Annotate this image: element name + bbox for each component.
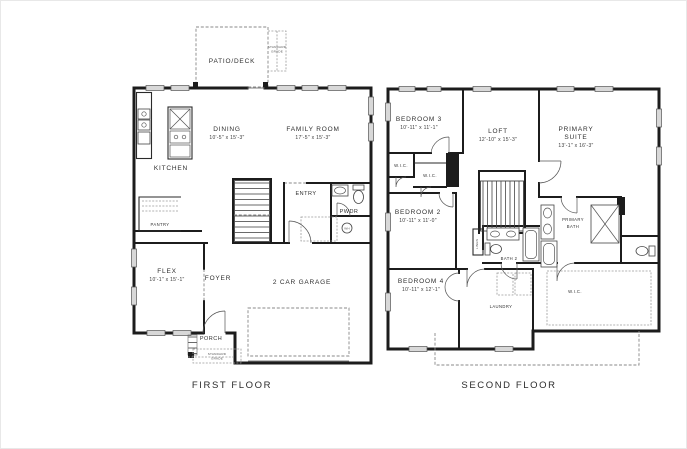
family-room-dims: 17'-5" x 15'-3" bbox=[295, 135, 330, 141]
bedroom4-dims: 10'-11" x 12'-1" bbox=[402, 287, 440, 293]
patio-post bbox=[263, 82, 268, 87]
pantry-shelves bbox=[142, 201, 178, 211]
toilet-tank-icon bbox=[353, 185, 364, 190]
laundry-fixtures bbox=[497, 273, 531, 295]
dining-label: DINING bbox=[213, 126, 241, 133]
patio-note-line2: GRADE bbox=[271, 50, 283, 54]
first-floor-plan: PATIO/DECK STANDARD GRADE bbox=[132, 27, 374, 391]
primary-suite-label-line1: PRIMARY bbox=[558, 126, 593, 133]
dryer-icon bbox=[515, 273, 531, 295]
porch-note-line1: STANDARD bbox=[208, 352, 227, 356]
patio-label: PATIO/DECK bbox=[209, 58, 255, 65]
bedroom2-label: BEDROOM 2 bbox=[395, 209, 441, 216]
garage-label: 2 CAR GARAGE bbox=[273, 279, 331, 286]
toilet-icon bbox=[636, 247, 648, 256]
entry-label: ENTRY bbox=[295, 191, 316, 197]
fridge-icon bbox=[138, 132, 150, 144]
primary-bath-label-line2: BATH bbox=[567, 224, 579, 229]
front-door bbox=[203, 311, 225, 333]
bedroom3-dims: 10'-11" x 11'-1" bbox=[400, 125, 438, 131]
bath2-label: BATH 2 bbox=[501, 256, 518, 261]
foyer-label: FOYER bbox=[205, 275, 231, 282]
primary-bath-label-line1: PRIMARY bbox=[562, 217, 584, 222]
primary-wic-door bbox=[557, 263, 575, 281]
water-heater-closet: WH bbox=[342, 223, 352, 233]
pantry: PANTRY bbox=[139, 197, 181, 231]
dining-dims: 10'-5" x 15'-3" bbox=[209, 135, 244, 141]
bedroom3-label: BEDROOM 3 bbox=[396, 116, 442, 123]
second-floor-title: SECOND FLOOR bbox=[461, 380, 556, 391]
linen-label: LINEN bbox=[475, 239, 479, 249]
toilet-tank-icon bbox=[485, 243, 490, 255]
patio-deck: PATIO/DECK STANDARD GRADE bbox=[193, 27, 287, 87]
laundry-door bbox=[467, 269, 485, 287]
bedroom2-dims: 10'-11" x 11'-0" bbox=[399, 218, 437, 224]
garage-door-outline bbox=[248, 308, 349, 356]
kitchen-label: KITCHEN bbox=[154, 165, 188, 172]
powder-label: PWDR bbox=[340, 209, 359, 215]
loft-dims: 12'-10" x 15'-3" bbox=[479, 137, 517, 143]
oven-icon bbox=[138, 109, 150, 119]
wic1-door bbox=[396, 177, 406, 187]
pantry-label: PANTRY bbox=[151, 222, 170, 227]
garage-details bbox=[248, 308, 349, 361]
wall-chase bbox=[446, 153, 459, 187]
toilet-icon bbox=[491, 245, 502, 254]
primary-suite-label-line2: SUITE bbox=[564, 134, 587, 141]
bedroom3-door bbox=[431, 137, 449, 153]
first-floor-title: FIRST FLOOR bbox=[192, 380, 272, 391]
primary-suite-dims: 13'-1" x 16'-3" bbox=[558, 143, 593, 149]
primary-wic-label: W.I.C. bbox=[568, 289, 582, 294]
garage-entry-door bbox=[289, 221, 311, 243]
porch-label: PORCH bbox=[200, 336, 222, 342]
patio-outline bbox=[196, 27, 268, 87]
wic1-label: W.I.C. bbox=[394, 163, 408, 168]
vanity-icon bbox=[487, 228, 519, 240]
porch-note-line2: GRADE bbox=[211, 357, 223, 361]
staircase bbox=[234, 181, 270, 242]
patio-note-line1: STANDARD bbox=[268, 45, 287, 49]
floor-plan-image: PATIO/DECK STANDARD GRADE bbox=[0, 0, 687, 449]
bedroom2-door bbox=[439, 193, 453, 207]
family-room-label: FAMILY ROOM bbox=[286, 126, 339, 133]
laundry-label: LAUNDRY bbox=[490, 304, 513, 309]
washer-icon bbox=[497, 273, 513, 295]
flex-label: FLEX bbox=[157, 268, 176, 275]
flex-dims: 10'-1" x 15'-1" bbox=[149, 277, 184, 283]
oven-icon bbox=[138, 120, 150, 130]
bedroom4-double-door bbox=[445, 273, 459, 301]
wic-shelving bbox=[547, 271, 651, 325]
kitchen-counter bbox=[137, 93, 152, 159]
second-floor-plan: BEDROOM 3 10'-11" x 11'-1" LOFT 12'-10" … bbox=[386, 87, 662, 392]
floor-plan-canvas: PATIO/DECK STANDARD GRADE bbox=[1, 1, 687, 449]
bedroom4-label: BEDROOM 4 bbox=[398, 278, 444, 285]
staircase bbox=[481, 181, 524, 231]
toilet-icon bbox=[354, 191, 364, 204]
wic2-label: W.I.C. bbox=[423, 173, 437, 178]
toilet-tank-icon bbox=[649, 246, 655, 256]
primary-suite-door bbox=[539, 161, 561, 183]
kitchen-island bbox=[168, 107, 192, 159]
loft-label: LOFT bbox=[488, 128, 508, 135]
primary-bath-door bbox=[561, 197, 577, 213]
patio-post bbox=[193, 82, 198, 87]
water-heater-label: WH bbox=[344, 227, 350, 231]
